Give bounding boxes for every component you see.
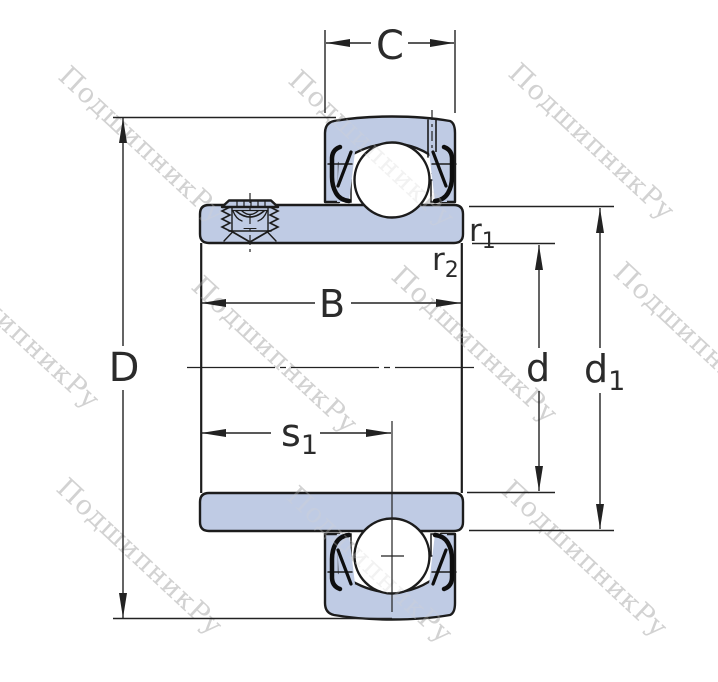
dim-label-d: d — [526, 346, 550, 390]
arrowhead-up — [596, 208, 604, 233]
arrowhead-left — [201, 429, 226, 437]
dim-label-d1-base: d — [584, 347, 608, 391]
arrowhead-up — [535, 245, 543, 270]
dim-label-r2: r2 — [432, 242, 459, 283]
dim-label-r1-sub: 1 — [482, 229, 496, 254]
dim-label-s1-sub: 1 — [301, 430, 318, 461]
arrowhead-right — [366, 429, 391, 437]
dim-C: C — [325, 23, 455, 113]
arrowhead-down — [596, 504, 604, 529]
arrowhead-down — [119, 593, 127, 618]
arrowhead-down — [535, 466, 543, 491]
dim-label-s1-base: s — [281, 411, 301, 455]
bearing-drawing-page: ПодшипникРу ПодшипникРу ПодшипникРу Подш… — [0, 0, 718, 682]
dim-label-s1: s1 — [281, 411, 318, 461]
arrowhead-left — [326, 39, 350, 47]
dim-label-B: B — [319, 282, 345, 326]
dim-label-D: D — [109, 345, 140, 391]
arrowhead-right — [430, 39, 454, 47]
dim-label-r2-base: r — [432, 242, 445, 278]
dim-label-r1-base: r — [469, 213, 482, 249]
dim-label-C: C — [376, 23, 404, 69]
dim-label-d1-sub: 1 — [608, 366, 625, 397]
dim-label-r1: r1 — [469, 213, 496, 254]
dim-label-d1: d1 — [584, 347, 625, 397]
dim-label-r2-sub: 2 — [445, 258, 459, 283]
bearing-drawing: ПодшипникРу ПодшипникРу ПодшипникРу Подш… — [0, 0, 718, 682]
